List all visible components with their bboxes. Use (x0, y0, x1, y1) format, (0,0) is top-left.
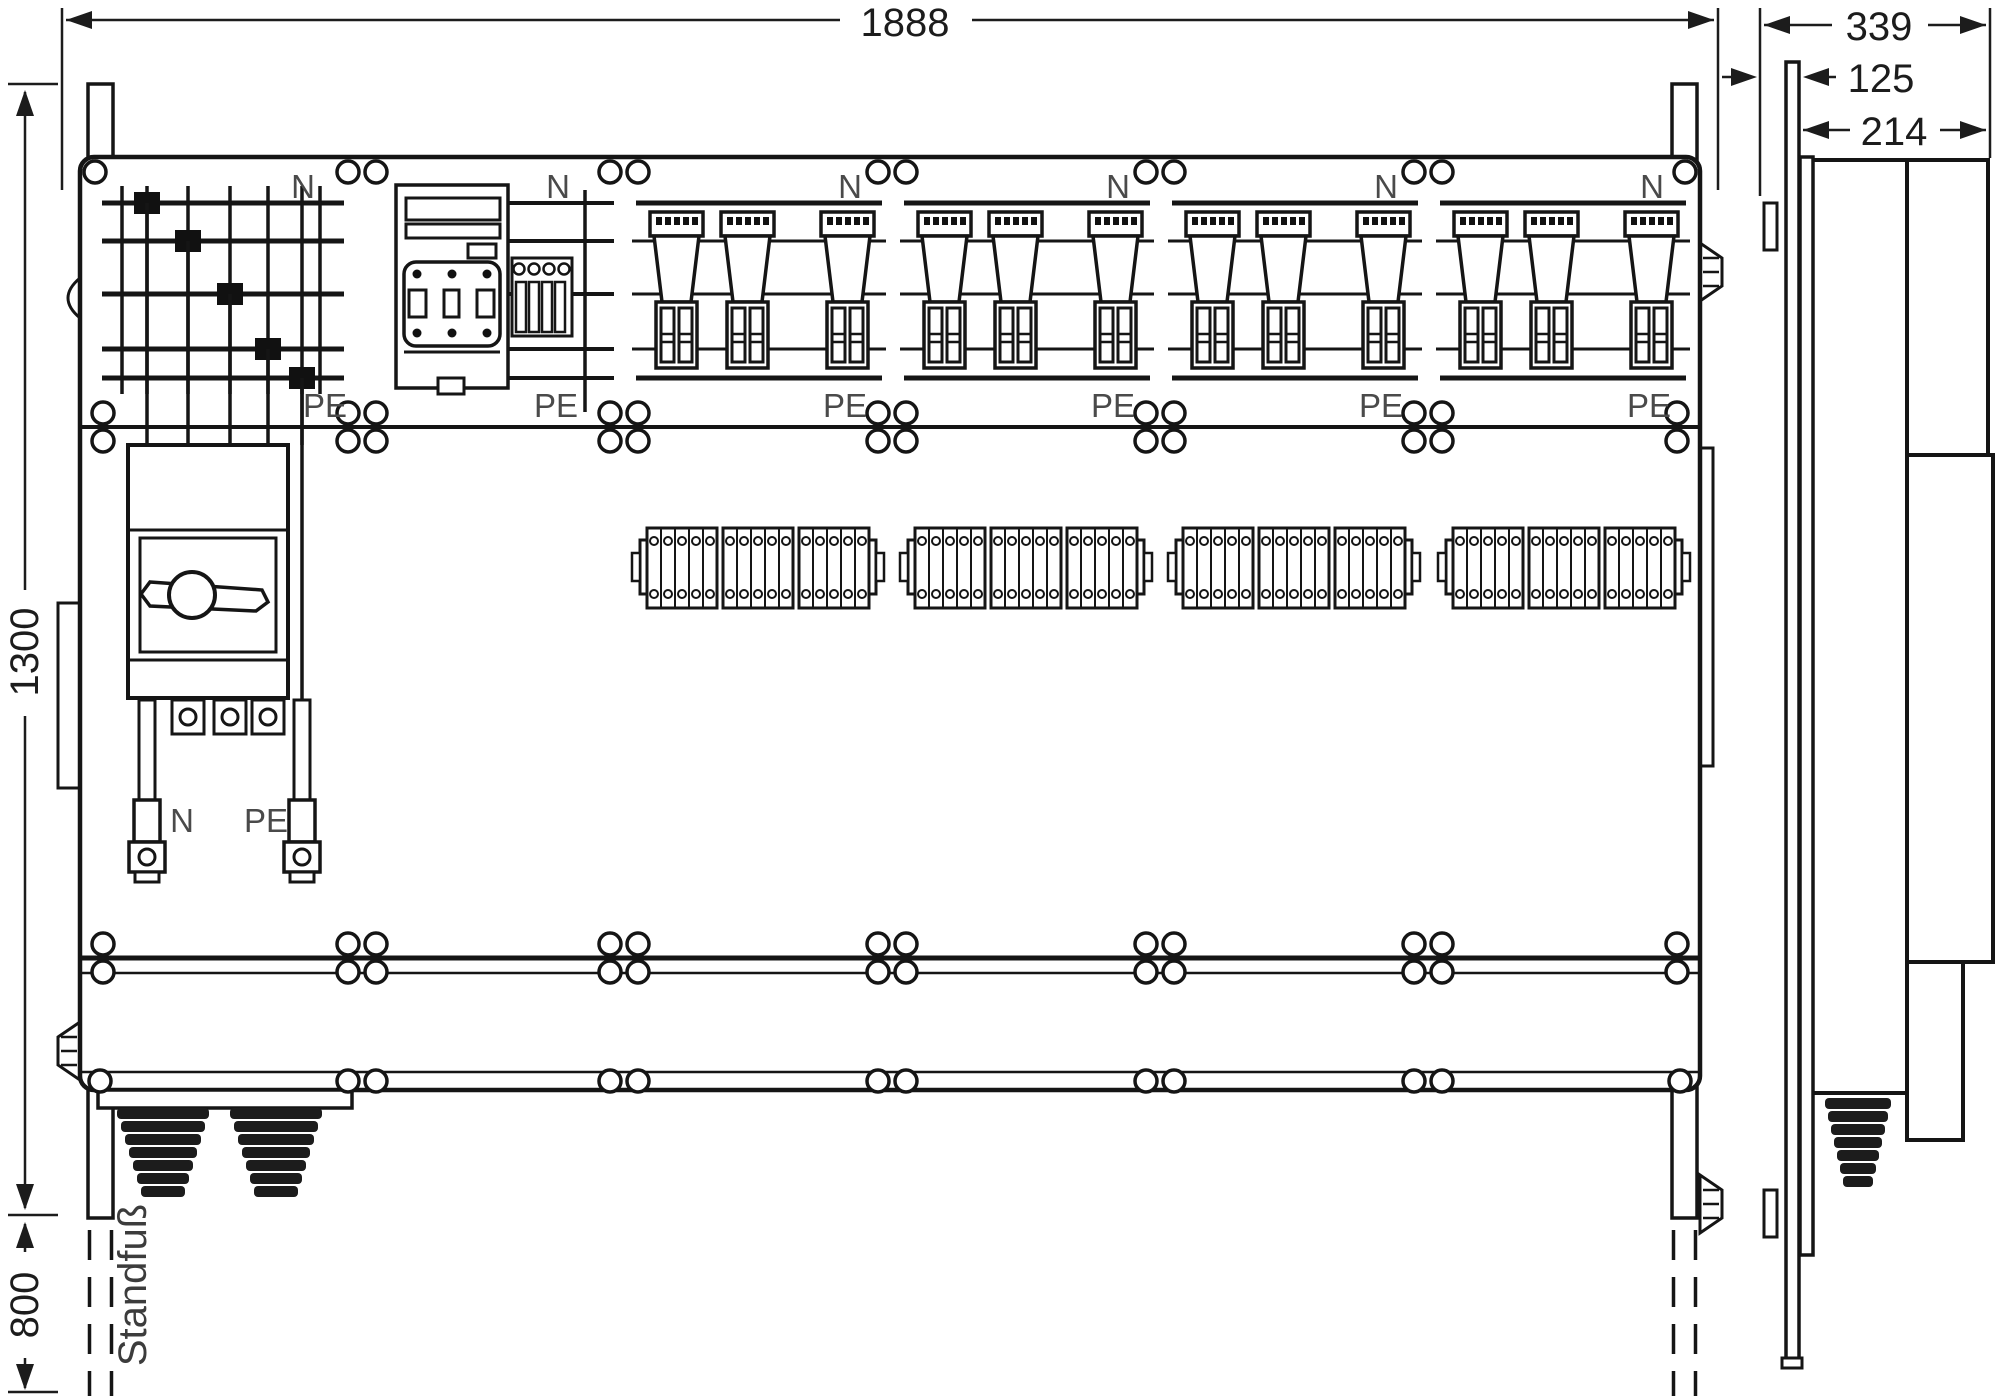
side-view-cabinet (1800, 157, 1993, 1255)
n-label-col5: N (1374, 168, 1398, 205)
display-bar (406, 224, 500, 238)
stand-label: Standfuß (111, 1204, 155, 1366)
fuse-panel (1168, 203, 1422, 378)
cabinet-drawing: 1888 339 125 214 1300 800 Standfuß N PE … (0, 0, 2000, 1396)
side-view-wall-rail (1764, 62, 1802, 1368)
display-bar (406, 198, 500, 220)
terminal-block-assembly (1168, 528, 1420, 608)
n-label-col4: N (1106, 168, 1130, 205)
dim-side-wall-clearance: 125 (1848, 57, 1915, 101)
pe-label-col2: PE (534, 387, 578, 424)
n-label-col3: N (838, 168, 862, 205)
pe-label-col3: PE (823, 387, 867, 424)
dim-side-total-depth: 339 (1846, 5, 1913, 49)
n-label-col2: N (546, 168, 570, 205)
pe-label-main-lug: PE (244, 802, 288, 839)
terminal-block-assembly (1438, 528, 1690, 608)
fuse-panel (900, 203, 1154, 378)
n-label-main-lug: N (170, 802, 194, 839)
aux-terminal-block (512, 258, 572, 336)
pe-label-col5: PE (1359, 387, 1403, 424)
fuse-panel (1436, 203, 1690, 378)
pe-label-col1: PE (303, 387, 347, 424)
front-view-enclosure (80, 157, 1700, 1090)
dim-cabinet-height: 1300 (3, 608, 47, 697)
terminal-block-assembly (900, 528, 1152, 608)
terminal-block-assembly (632, 528, 884, 608)
dim-total-width: 1888 (861, 1, 950, 45)
cable-gland-icon (230, 1108, 322, 1197)
technical-drawing-canvas: 1888 339 125 214 1300 800 Standfuß N PE … (0, 0, 2000, 1396)
dim-side-body-depth: 214 (1861, 110, 1928, 154)
n-label-col1: N (291, 168, 315, 205)
n-label-col6: N (1640, 168, 1664, 205)
cable-gland-icon (117, 1108, 209, 1197)
pe-label-col4: PE (1091, 387, 1135, 424)
fuse-panel (632, 203, 886, 378)
pe-label-col6: PE (1627, 387, 1671, 424)
dim-stand-height: 800 (3, 1272, 47, 1339)
cable-gland-area (98, 1090, 352, 1197)
